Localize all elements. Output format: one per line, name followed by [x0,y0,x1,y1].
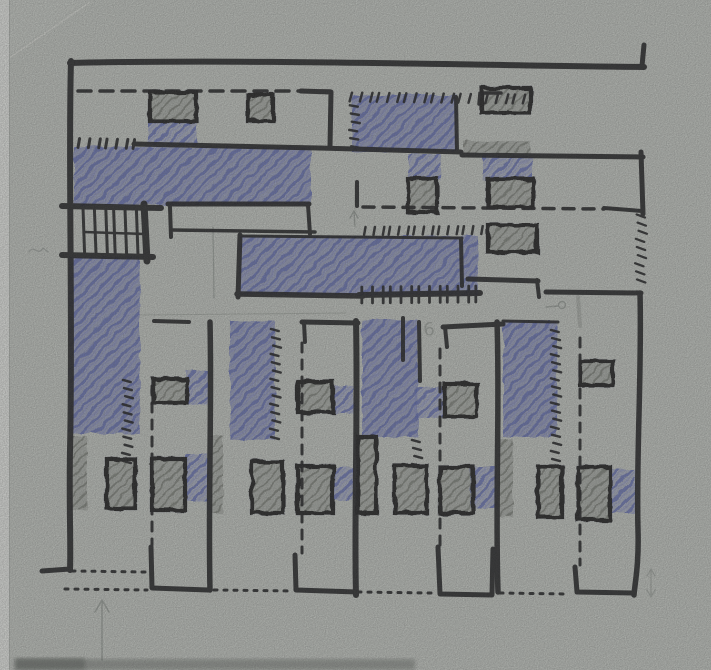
scanned-paper-sketch: 6 [0,0,711,670]
plan-sketch-canvas: 6 [0,0,711,670]
paper-grain-overlay [0,0,711,670]
